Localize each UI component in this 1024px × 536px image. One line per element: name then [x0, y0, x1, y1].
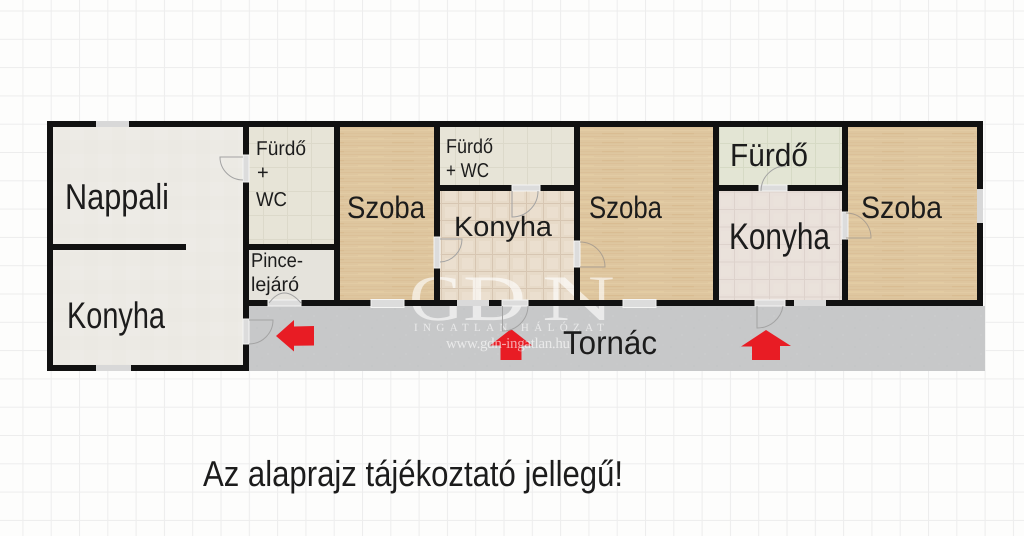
- svg-text:WC: WC: [256, 189, 287, 211]
- svg-text:+ WC: + WC: [446, 160, 489, 182]
- svg-text:Szoba: Szoba: [347, 190, 426, 225]
- svg-text:Fürdő: Fürdő: [256, 138, 306, 160]
- svg-text:lejáró: lejáró: [251, 274, 299, 296]
- svg-text:Fürdő: Fürdő: [730, 137, 808, 173]
- svg-text:Pince-: Pince-: [251, 250, 303, 272]
- svg-text:Konyha: Konyha: [67, 295, 165, 336]
- svg-text:Szoba: Szoba: [861, 190, 943, 225]
- svg-text:Tornác: Tornác: [563, 324, 657, 361]
- svg-text:Fürdő: Fürdő: [446, 136, 493, 158]
- svg-text:www.gdn-ingatlan.hu: www.gdn-ingatlan.hu: [446, 336, 571, 352]
- svg-text:Szoba: Szoba: [589, 190, 663, 225]
- svg-text:D: D: [463, 263, 526, 335]
- svg-text:Az alaprajz tájékoztató jelleg: Az alaprajz tájékoztató jellegű!: [203, 453, 623, 494]
- svg-text:+: +: [257, 162, 269, 184]
- svg-text:Nappali: Nappali: [65, 176, 169, 217]
- svg-text:Konyha: Konyha: [729, 216, 830, 257]
- svg-text:Konyha: Konyha: [454, 211, 552, 242]
